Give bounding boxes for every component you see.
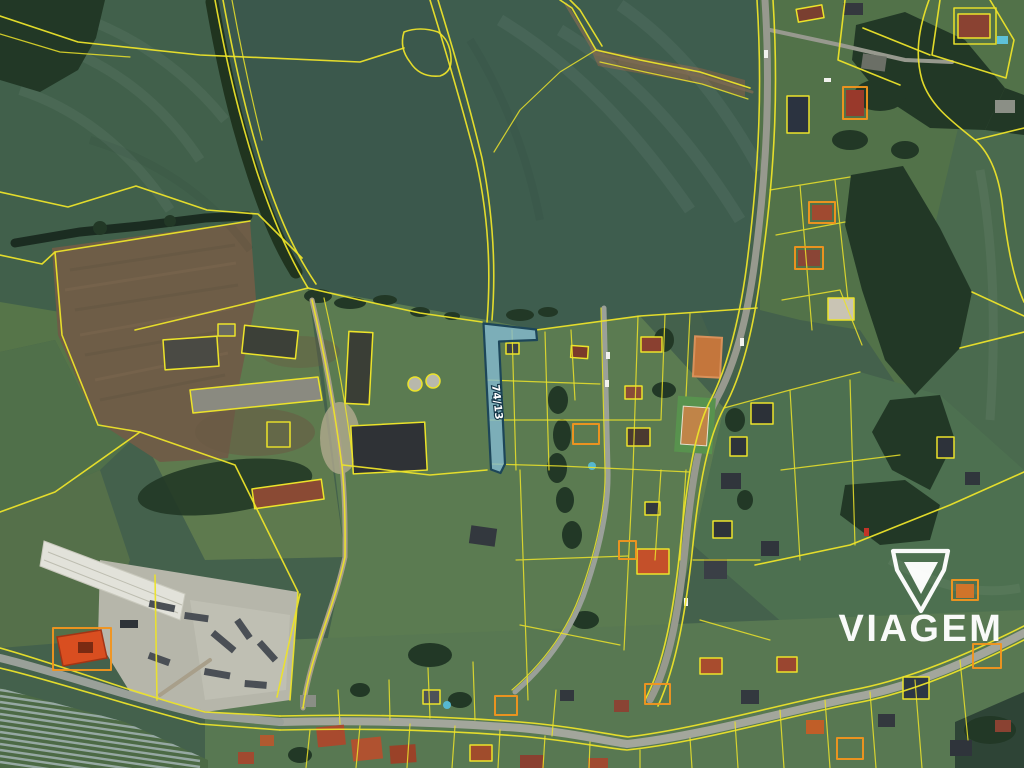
- building: [937, 437, 954, 458]
- building: [956, 584, 974, 598]
- building: [637, 549, 669, 574]
- building: [218, 324, 235, 336]
- building: [242, 325, 299, 358]
- building: [571, 345, 589, 358]
- building: [787, 96, 809, 133]
- building: [238, 752, 254, 764]
- building: [260, 735, 274, 746]
- building: [389, 744, 416, 764]
- building: [614, 700, 629, 712]
- building: [423, 690, 440, 704]
- building: [704, 559, 727, 579]
- building: [163, 336, 219, 370]
- building: [641, 337, 662, 352]
- building: [950, 740, 972, 756]
- building: [730, 437, 747, 456]
- building: [351, 736, 383, 761]
- building: [741, 690, 759, 704]
- building: [316, 725, 346, 748]
- building: [965, 472, 980, 485]
- building: [300, 695, 316, 707]
- building: [798, 250, 820, 266]
- building: [351, 422, 427, 474]
- building: [560, 690, 574, 701]
- building: [470, 745, 492, 761]
- building: [721, 473, 741, 489]
- building: [713, 521, 732, 538]
- building: [843, 3, 863, 15]
- building: [625, 386, 642, 399]
- clay-court: [693, 336, 722, 377]
- building: [751, 403, 773, 424]
- watermark-text: VIAGEM: [839, 608, 1004, 650]
- building: [777, 657, 797, 672]
- building: [812, 205, 832, 220]
- building: [520, 755, 544, 768]
- building: [995, 100, 1015, 113]
- building: [627, 428, 650, 446]
- map-canvas: 74/13 VIAGEM: [0, 0, 1024, 768]
- building: [588, 758, 608, 768]
- building: [761, 541, 779, 556]
- building: [469, 525, 497, 546]
- building: [958, 14, 990, 38]
- building: [846, 90, 864, 116]
- building: [995, 720, 1011, 732]
- building: [700, 658, 722, 674]
- building: [806, 720, 824, 734]
- building: [345, 331, 373, 404]
- building: [878, 714, 895, 727]
- aerial-map: 74/13 VIAGEM: [0, 0, 1024, 768]
